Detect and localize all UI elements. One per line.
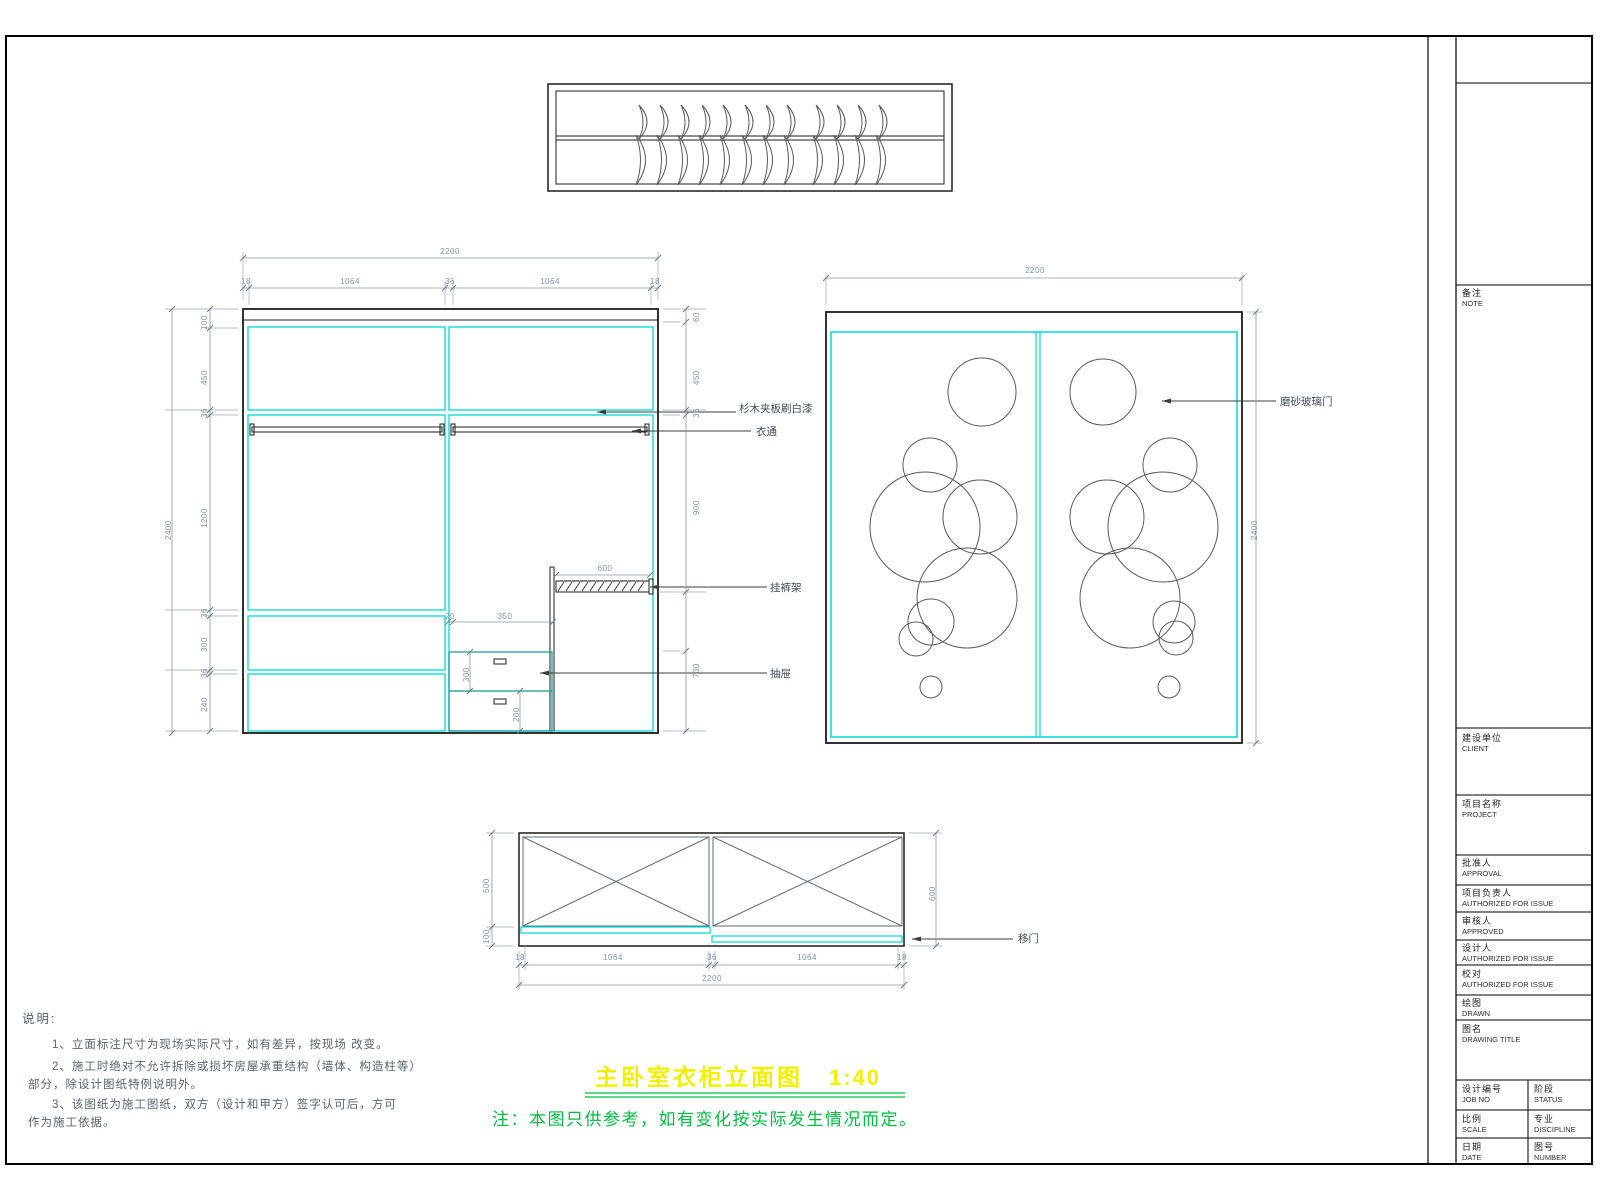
field-label-en: SCALE [1462, 1125, 1487, 1134]
dim-elev-seg: 1064 [515, 277, 585, 286]
wardrobe-door-elevation [826, 312, 1242, 743]
titleblock-field-project-leader: 项目负责人 AUTHORIZED FOR ISSUE [1462, 888, 1553, 908]
hangers [636, 105, 887, 185]
title-underline [585, 1093, 905, 1097]
field-label-zh: 建设单位 [1462, 733, 1502, 744]
drawer-unit [449, 652, 552, 731]
frosted-glass-bubbles [870, 358, 1218, 698]
dim-elev-left: 240 [200, 697, 209, 712]
field-label-zh: 图名 [1462, 1024, 1520, 1035]
note-line: 作为施工依据。 [28, 1114, 116, 1130]
trouser-rack [550, 567, 653, 731]
field-label-en: CLIENT [1462, 744, 1502, 753]
dim-plan-seg: 18 [502, 953, 538, 962]
dim-elev-right: 36 [692, 408, 701, 418]
dim-door-total-width: 2200 [985, 266, 1085, 275]
dim-elev-total-height: 2400 [164, 520, 173, 540]
field-label-en: DISCIPLINE [1534, 1125, 1576, 1134]
callout-panel-finish: 杉木夹板刷白漆 [739, 401, 813, 416]
field-label-zh: 阶段 [1534, 1084, 1562, 1095]
dim-elev-left: 100 [200, 315, 209, 330]
dim-plan-depth: 500 [482, 878, 491, 893]
titleblock-field-drawn: 绘图 DRAWN [1462, 998, 1490, 1018]
dim-elev-left: 36 [200, 668, 209, 678]
titleblock-field-client: 建设单位 CLIENT [1462, 733, 1502, 753]
field-label-zh: 校对 [1462, 969, 1553, 980]
field-label-en: AUTHORIZED FOR ISSUE [1462, 954, 1553, 963]
titleblock-field-note: 备注 NOTE [1462, 288, 1483, 308]
dim-drawer-height: 300 [462, 667, 471, 682]
field-label-en: APPROVED [1462, 927, 1504, 936]
field-label-en: JOB NO [1462, 1095, 1502, 1104]
callout-drawer: 抽屉 [770, 666, 791, 681]
titleblock-cell-date: 日期 DATE [1462, 1142, 1482, 1162]
titleblock-cell-scale: 比例 SCALE [1462, 1114, 1487, 1134]
notes-heading: 说明: [22, 1008, 56, 1027]
field-label-zh: 项目负责人 [1462, 888, 1553, 899]
dim-door-total-height: 2400 [1250, 520, 1259, 540]
dim-plan-seg: 1064 [772, 953, 842, 962]
dim-drawer-width: 350 [480, 612, 530, 621]
dim-elev-left: 450 [200, 370, 209, 385]
callout-sliding-door: 移门 [1018, 931, 1039, 946]
field-label-en: STATUS [1534, 1095, 1562, 1104]
dim-elev-total-width: 2200 [400, 247, 500, 256]
dim-plan-total-depth: 600 [928, 886, 937, 901]
drawing-title-row: 主卧室衣柜立面图1:40 [595, 1058, 881, 1092]
dim-drawer-gap: 20 [435, 612, 465, 621]
dim-elev-seg: 1064 [315, 277, 385, 286]
wardrobe-elevation-panels [248, 327, 653, 731]
field-label-zh: 专业 [1534, 1114, 1576, 1125]
dimension-ticks [169, 255, 1259, 988]
field-label-en: NOTE [1462, 299, 1483, 308]
field-label-en: AUTHORIZED FOR ISSUE [1462, 899, 1553, 908]
dimension-lines [172, 258, 1256, 985]
dim-elev-right: 450 [692, 370, 701, 385]
note-line: 部分，除设计图纸特例说明外。 [28, 1076, 203, 1092]
callout-clothes-rod: 衣通 [756, 424, 777, 439]
field-label-en: AUTHORIZED FOR ISSUE [1462, 980, 1553, 989]
dim-elev-seg: 36 [430, 277, 470, 286]
titleblock-field-drawing-title: 图名 DRAWING TITLE [1462, 1024, 1520, 1044]
titleblock-field-project: 项目名称 PROJECT [1462, 799, 1502, 819]
drawing-linework [0, 0, 1600, 1200]
field-label-en: DATE [1462, 1153, 1482, 1162]
dim-elev-left: 36 [200, 408, 209, 418]
dim-plan-seg: 36 [694, 953, 730, 962]
field-label-zh: 日期 [1462, 1142, 1482, 1153]
hanger-rail-detail [548, 84, 952, 191]
field-label-en: PROJECT [1462, 810, 1502, 819]
titleblock-field-reviewer: 审核人 APPROVED [1462, 916, 1504, 936]
field-label-en: DRAWN [1462, 1009, 1490, 1018]
callout-trouser-rack: 挂裤架 [770, 580, 802, 595]
note-line: 2、施工时绝对不允许拆除或损坏房屋承重结构（墙体、构造柱等） [52, 1058, 422, 1074]
field-label-en: NUMBER [1534, 1153, 1567, 1162]
field-label-zh: 图号 [1534, 1142, 1567, 1153]
field-label-zh: 备注 [1462, 288, 1483, 299]
dim-elev-right: 730 [692, 663, 701, 678]
titleblock-field-approval: 批准人 APPROVAL [1462, 858, 1502, 878]
field-label-zh: 绘图 [1462, 998, 1490, 1009]
titleblock-field-checker: 校对 AUTHORIZED FOR ISSUE [1462, 969, 1553, 989]
dim-drawer-height2: 200 [512, 707, 521, 722]
titleblock-cell-number: 图号 NUMBER [1534, 1142, 1567, 1162]
field-label-zh: 比例 [1462, 1114, 1487, 1125]
dim-elev-seg: 18 [226, 277, 266, 286]
titleblock-cell-discipline: 专业 DISCIPLINE [1534, 1114, 1576, 1134]
title-note: 注：本图只供参考，如有变化按实际发生情况而定。 [492, 1105, 918, 1130]
cad-sheet: 2200 18 1064 36 1064 18 2400 100 450 36 … [0, 0, 1600, 1200]
titleblock-cell-jobno: 设计编号 JOB NO [1462, 1084, 1502, 1104]
dim-elev-left: 1200 [200, 508, 209, 528]
dim-elev-left: 300 [200, 637, 209, 652]
dim-elev-seg: 18 [635, 277, 675, 286]
dim-elev-right: 60 [692, 312, 701, 322]
dim-plan-track: 100 [482, 929, 491, 944]
field-label-zh: 审核人 [1462, 916, 1504, 927]
callout-frosted-glass-door: 磨砂玻璃门 [1280, 394, 1333, 409]
titleblock-cell-status: 阶段 STATUS [1534, 1084, 1562, 1104]
field-label-zh: 批准人 [1462, 858, 1502, 869]
dim-plan-total-width: 2200 [662, 974, 762, 983]
dim-plan-seg: 1064 [578, 953, 648, 962]
dim-elev-left: 36 [200, 608, 209, 618]
field-label-zh: 设计人 [1462, 943, 1553, 954]
field-label-zh: 设计编号 [1462, 1084, 1502, 1095]
dim-elev-right: 900 [692, 500, 701, 515]
field-label-zh: 项目名称 [1462, 799, 1502, 810]
titleblock-field-designer: 设计人 AUTHORIZED FOR ISSUE [1462, 943, 1553, 963]
field-label-en: DRAWING TITLE [1462, 1035, 1520, 1044]
note-line: 1、立面标注尺寸为现场实际尺寸，如有差异，按现场 改变。 [52, 1036, 389, 1052]
note-line: 3、该图纸为施工图纸，双方（设计和甲方）签字认可后，方可 [52, 1096, 397, 1112]
wardrobe-plan-view [519, 833, 904, 946]
title-scale: 1:40 [829, 1065, 881, 1090]
dim-plan-seg: 18 [884, 953, 920, 962]
page-title: 主卧室衣柜立面图 [595, 1064, 803, 1090]
field-label-en: APPROVAL [1462, 869, 1502, 878]
dim-rack-length: 600 [580, 564, 630, 573]
